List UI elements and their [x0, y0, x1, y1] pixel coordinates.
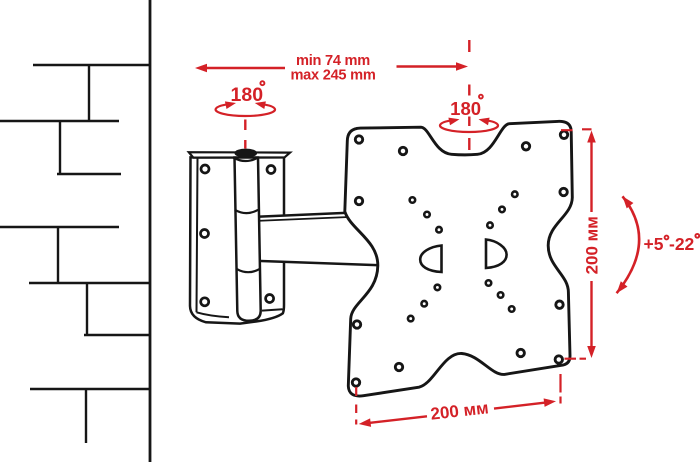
- svg-text:180: 180: [450, 98, 481, 119]
- svg-text:max 245 mm: max 245 mm: [290, 67, 375, 83]
- svg-text:-22: -22: [669, 234, 695, 254]
- svg-text:+5: +5: [644, 234, 664, 254]
- svg-text:180: 180: [231, 84, 264, 106]
- svg-text:200 мм: 200 мм: [583, 216, 602, 274]
